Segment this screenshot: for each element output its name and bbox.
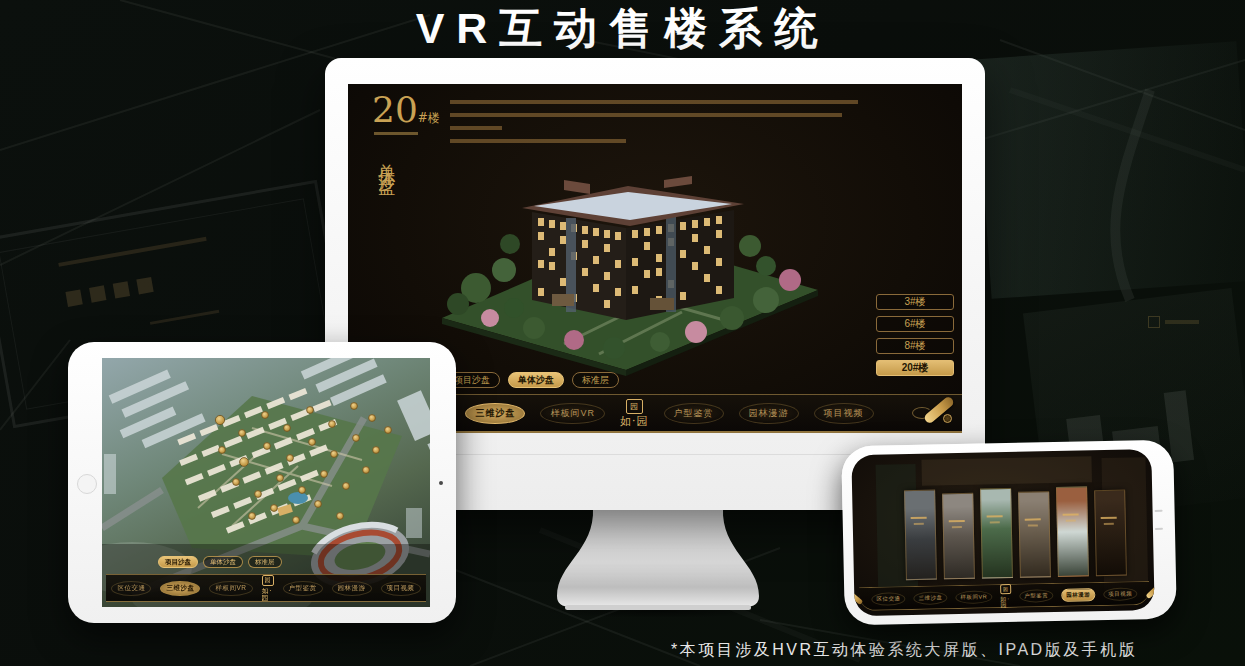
phone-side-button [1155, 510, 1163, 512]
building-unit: #楼 [418, 111, 440, 125]
floor-button-6[interactable]: 6#楼 [876, 316, 954, 332]
scroll-menu-icon-left[interactable] [851, 592, 863, 606]
footnote-text: *本项目涉及HVR互动体验系统大屏版、IPAD版及手机版 [671, 640, 1137, 661]
panorama-thumbnail[interactable] [1056, 486, 1089, 577]
tablet-tab-standard-floor[interactable]: 标准层 [248, 556, 282, 568]
interior-scene-background [851, 449, 1151, 455]
section-title-vertical: 单体沙盘 [376, 150, 399, 170]
tablet-tab-project-sandbox[interactable]: 项目沙盘 [158, 556, 198, 568]
phone-nav-showroom-vr[interactable]: 样板间VR [955, 590, 992, 604]
building-number: 20 [372, 89, 418, 130]
tablet-screen: 项目沙盘 单体沙盘 标准层 区位交通 三维沙盘 样板间VR 园 如·园 户型鉴赏… [102, 358, 430, 607]
floor-button-8[interactable]: 8#楼 [876, 338, 954, 354]
tablet-home-button[interactable] [77, 474, 97, 494]
panorama-thumbnail[interactable] [1094, 490, 1127, 577]
nav-item-garden-tour[interactable]: 园林漫游 [739, 403, 799, 424]
description-text-lines [450, 100, 858, 152]
phone-side-button [1155, 528, 1163, 530]
masterplan-aerial-view[interactable] [102, 358, 430, 607]
panorama-thumbnail[interactable] [942, 493, 975, 580]
phone-screen: 区位交通 三维沙盘 样板间VR 园 如·园 户型鉴赏 园林漫游 项目视频 [851, 449, 1154, 616]
background-brand-mark [1148, 316, 1199, 328]
tablet-nav-location-traffic[interactable]: 区位交通 [111, 581, 151, 596]
phone-nav-project-video[interactable]: 项目视频 [1103, 587, 1137, 601]
tablet-device: 项目沙盘 单体沙盘 标准层 区位交通 三维沙盘 样板间VR 园 如·园 户型鉴赏… [68, 342, 456, 623]
tablet-brand-logo: 园 如·园 [262, 575, 274, 602]
tablet-nav-3d-sandbox[interactable]: 三维沙盘 [160, 581, 200, 596]
phone-nav-location-traffic[interactable]: 区位交通 [871, 592, 905, 606]
panorama-thumbnail-row [904, 486, 1127, 581]
phone-device: 区位交通 三维沙盘 样板间VR 园 如·园 户型鉴赏 园林漫游 项目视频 [841, 440, 1177, 626]
scroll-menu-icon[interactable] [914, 393, 954, 427]
tablet-nav-unit-plans[interactable]: 户型鉴赏 [283, 581, 323, 596]
tab-single-sandbox[interactable]: 单体沙盘 [508, 372, 564, 388]
background-photo-aerial [975, 41, 1245, 299]
monitor-stand [557, 508, 759, 612]
nav-item-unit-plans[interactable]: 户型鉴赏 [664, 403, 724, 424]
scroll-menu-icon-right[interactable] [1145, 586, 1155, 600]
tablet-sandbox-tabs: 项目沙盘 单体沙盘 标准层 [158, 556, 282, 568]
phone-navbar: 区位交通 三维沙盘 样板间VR 园 如·园 户型鉴赏 园林漫游 项目视频 [859, 581, 1149, 611]
phone-nav-unit-plans[interactable]: 户型鉴赏 [1019, 589, 1053, 603]
seal-icon: 园 [262, 575, 274, 586]
panorama-thumbnail[interactable] [980, 488, 1013, 579]
building-heading-subtext [374, 132, 418, 135]
panorama-thumbnail[interactable] [904, 490, 937, 581]
floor-button-20[interactable]: 20#楼 [876, 360, 954, 376]
building-model-3d[interactable] [414, 148, 844, 376]
nav-item-3d-sandbox[interactable]: 三维沙盘 [465, 403, 525, 424]
tablet-nav-showroom-vr[interactable]: 样板间VR [209, 581, 252, 596]
nav-item-showroom-vr[interactable]: 样板间VR [540, 403, 605, 424]
seal-icon: 园 [626, 399, 643, 414]
page-title: VR互动售楼系统 [0, 0, 1245, 58]
tablet-navbar: 区位交通 三维沙盘 样板间VR 园 如·园 户型鉴赏 园林漫游 项目视频 [106, 574, 426, 602]
sandbox-tabs: 项目沙盘 单体沙盘 标准层 [444, 372, 619, 388]
seal-icon: 园 [1000, 584, 1011, 594]
brand-logo: 园 如·园 [620, 399, 649, 427]
phone-nav-3d-sandbox[interactable]: 三维沙盘 [913, 591, 947, 605]
tab-standard-floor[interactable]: 标准层 [572, 372, 619, 388]
floor-button-group: 3#楼 6#楼 8#楼 20#楼 [876, 294, 954, 382]
page: VR互动售楼系统 20#楼 单体沙盘 [0, 0, 1245, 666]
floor-button-3[interactable]: 3#楼 [876, 294, 954, 310]
tablet-camera-dot [439, 481, 443, 485]
tablet-tab-single-sandbox[interactable]: 单体沙盘 [203, 556, 243, 568]
phone-brand-logo: 园 如·园 [1000, 584, 1012, 608]
panorama-thumbnail[interactable] [1018, 491, 1051, 578]
tablet-nav-garden-tour[interactable]: 园林漫游 [332, 581, 372, 596]
building-heading: 20#楼 [372, 92, 440, 141]
nav-item-project-video[interactable]: 项目视频 [814, 403, 874, 424]
tablet-nav-project-video[interactable]: 项目视频 [381, 581, 421, 596]
phone-nav-garden-tour[interactable]: 园林漫游 [1061, 588, 1095, 602]
